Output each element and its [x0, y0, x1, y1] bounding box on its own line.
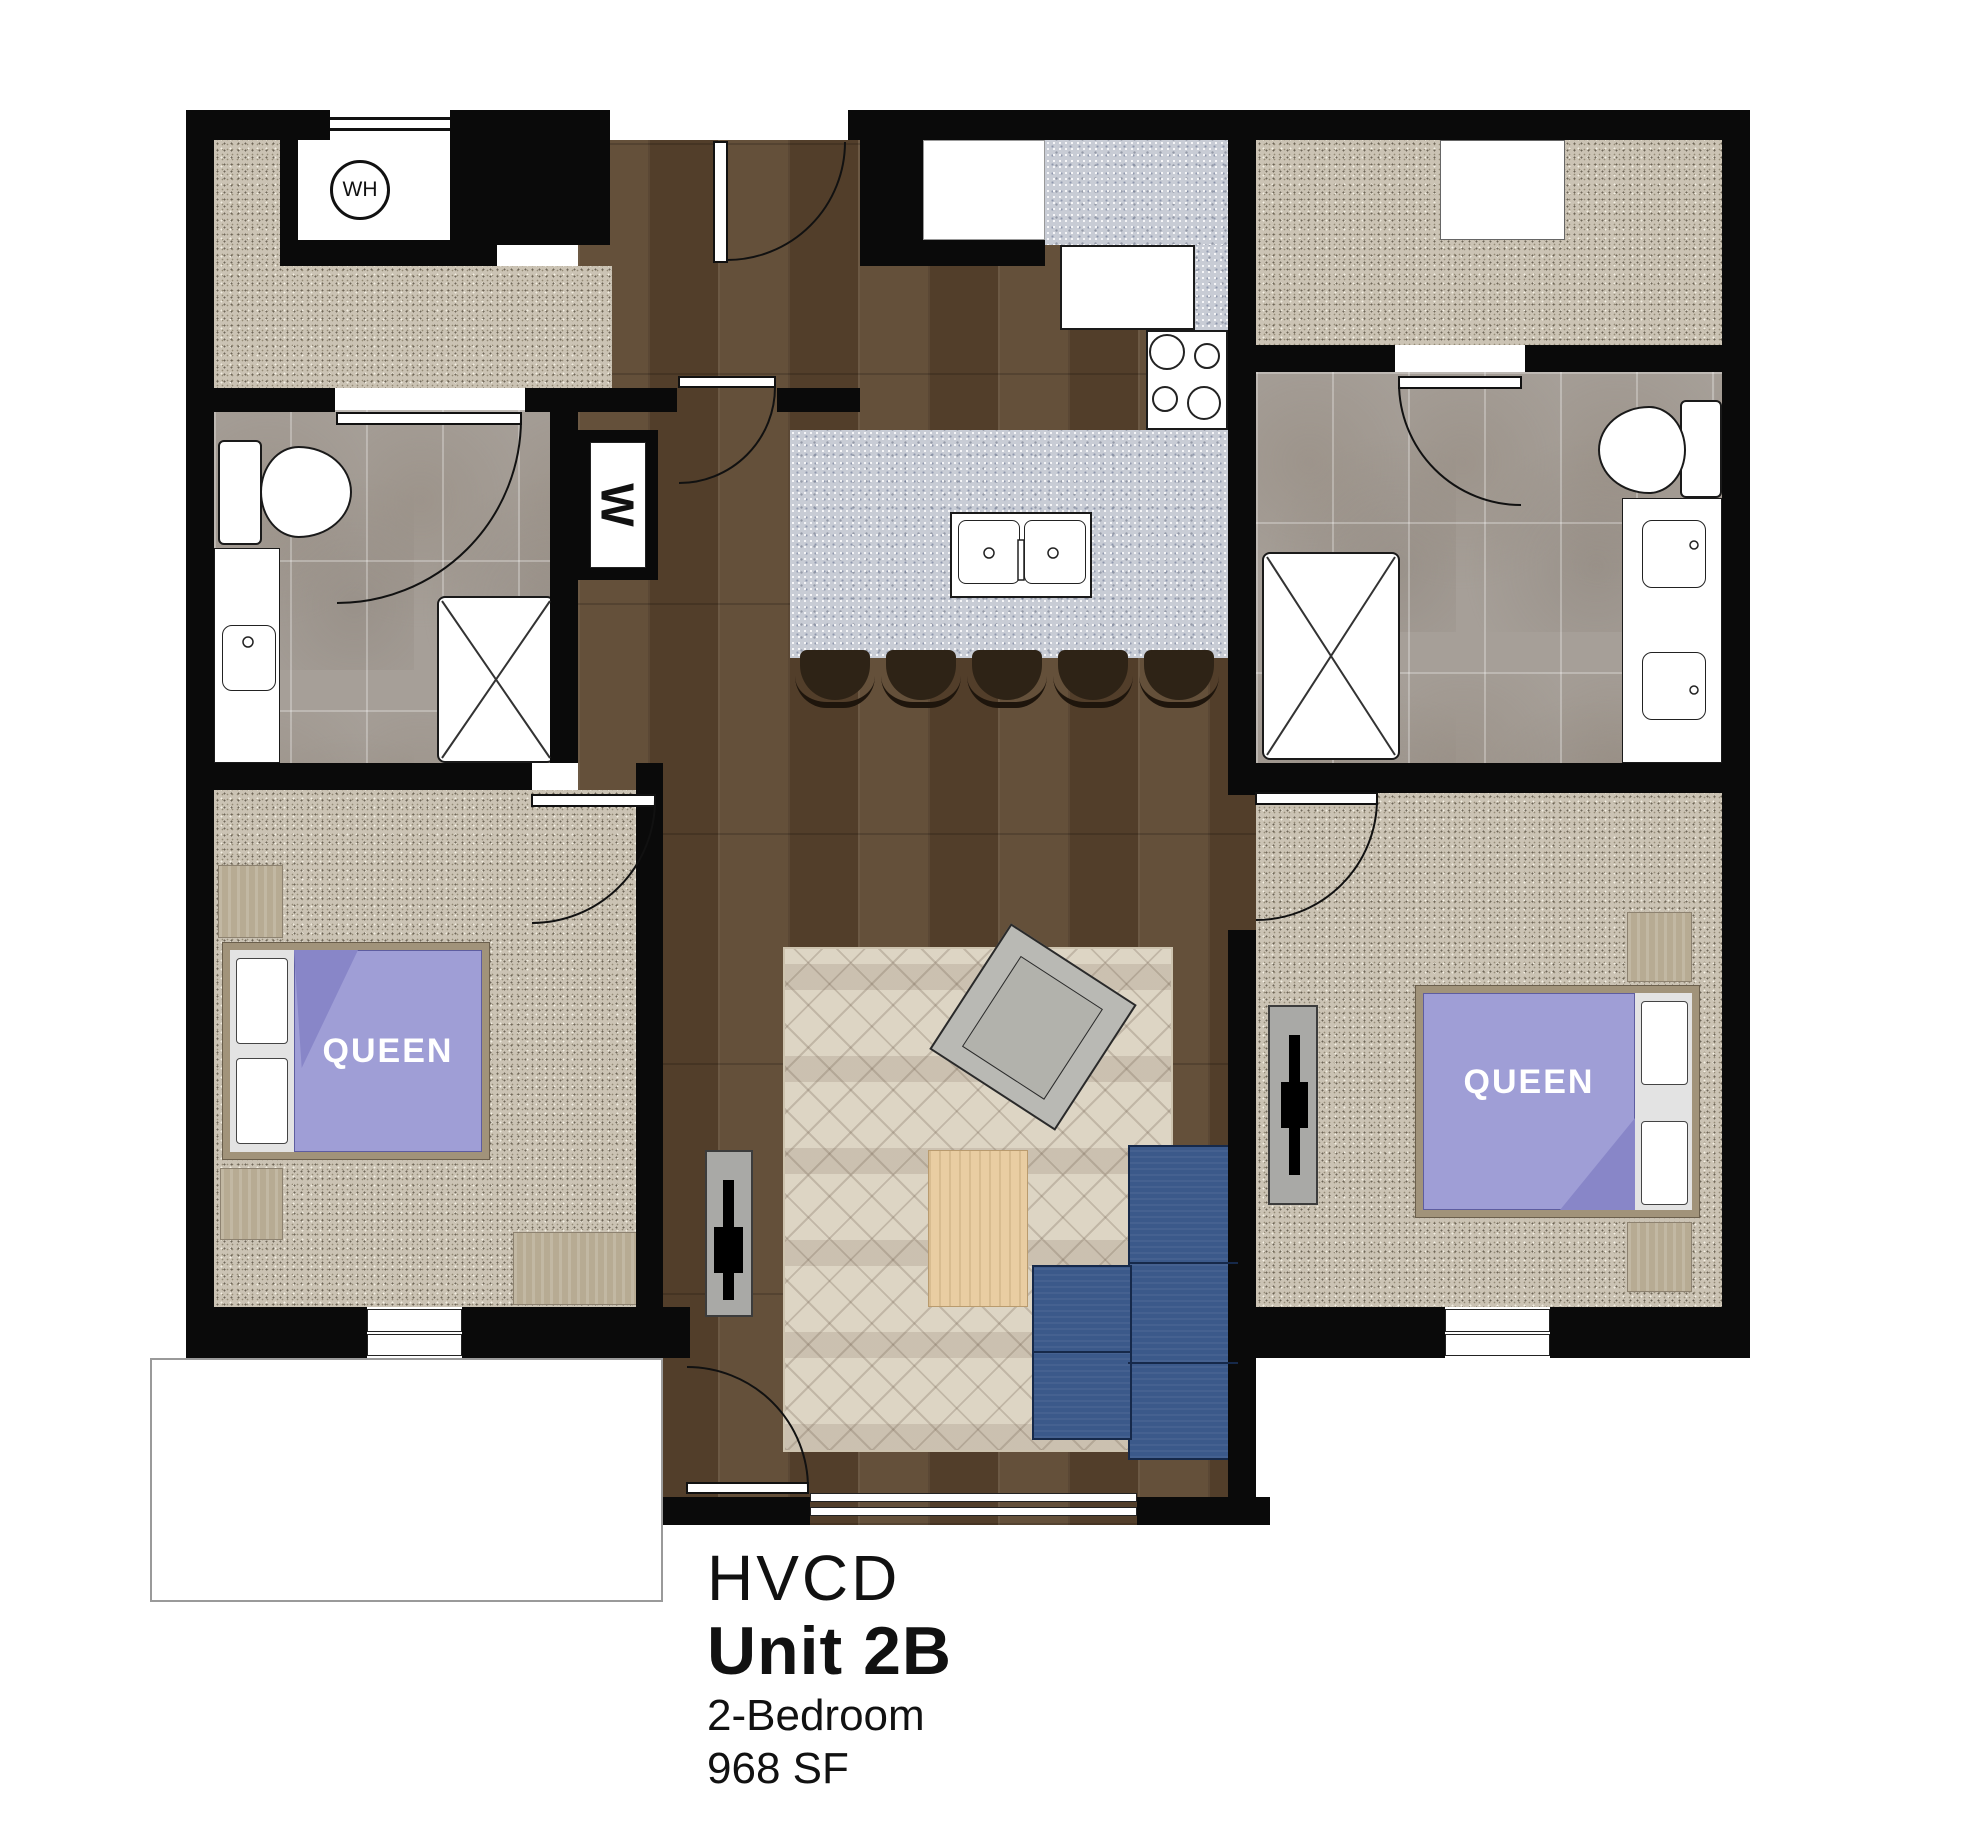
- water-heater-label: WH: [343, 178, 378, 202]
- kitchen-sink-basin-right: [1024, 520, 1086, 584]
- nightstand: [1627, 1222, 1692, 1292]
- wall-closet-bath2: [1256, 345, 1395, 372]
- closet-shelf: [1440, 140, 1565, 240]
- sofa-section-chaise: [1032, 1265, 1132, 1440]
- unit-name: Unit 2B: [707, 1612, 1307, 1690]
- toilet-tank: [218, 440, 262, 545]
- bed1-pillow: [236, 958, 288, 1044]
- accent-chair-seat: [962, 956, 1103, 1100]
- wall-bedroom1-living: [636, 763, 663, 1307]
- wall: [186, 1307, 367, 1358]
- project-name: HVCD: [707, 1545, 1307, 1612]
- unit-type: 2-Bedroom: [707, 1690, 1307, 1743]
- bed2-pillow: [1641, 1121, 1688, 1205]
- wall: [186, 763, 532, 790]
- living-window-band: [810, 1507, 1137, 1516]
- bedroom2-tv-mount: [1281, 1082, 1308, 1128]
- wall: [280, 140, 298, 243]
- bedroom1-window: [367, 1309, 462, 1332]
- entry-carpet: [214, 266, 612, 388]
- bed1-pillow: [236, 1058, 288, 1144]
- nightstand: [220, 1168, 283, 1240]
- wall-closet-bath2: [1525, 345, 1722, 372]
- living-tv-mount: [714, 1227, 743, 1273]
- wall: [610, 388, 677, 412]
- wall: [450, 140, 610, 245]
- wall: [525, 388, 610, 412]
- wall: [450, 110, 610, 140]
- wh-closet-door: [330, 117, 450, 120]
- bathroom2-sink: [1642, 652, 1706, 720]
- dresser: [513, 1232, 637, 1305]
- bedroom1-window: [367, 1334, 462, 1356]
- bedroom2-window: [1445, 1309, 1550, 1332]
- wall: [860, 140, 923, 240]
- bathroom1-shower: [437, 596, 555, 763]
- bed2-label: QUEEN: [1423, 1063, 1635, 1102]
- entry-closet: [923, 140, 1045, 240]
- sofa-section-main: [1128, 1145, 1238, 1460]
- floor-plan: QUEEN QUEEN: [0, 0, 1986, 1836]
- wall: [550, 410, 578, 763]
- nightstand: [218, 865, 283, 938]
- wall-living-bedroom2: [1228, 930, 1256, 1525]
- wall-left-exterior: [186, 110, 214, 1358]
- kitchen-sink-basin-left: [958, 520, 1020, 584]
- bathroom2-shower: [1262, 552, 1400, 760]
- washer-symbol: W: [590, 442, 646, 568]
- bed1-label: QUEEN: [294, 1032, 482, 1071]
- bathroom2-sink: [1642, 520, 1706, 588]
- stove-cooktop: [1146, 330, 1228, 430]
- bed2-pillow: [1641, 1001, 1688, 1085]
- wall: [663, 1497, 810, 1525]
- wall-bath2-bedroom2: [1256, 763, 1722, 793]
- coffee-table: [928, 1150, 1028, 1307]
- unit-area: 968 SF: [707, 1743, 1307, 1796]
- wall: [1256, 110, 1750, 140]
- nightstand: [1627, 912, 1692, 982]
- title-block: HVCD Unit 2B 2-Bedroom 968 SF: [707, 1545, 1307, 1796]
- wall: [186, 388, 335, 412]
- wall: [777, 388, 860, 412]
- wall-right-exterior: [1722, 110, 1750, 1358]
- washer-label: W: [591, 483, 645, 526]
- wall: [860, 240, 1045, 266]
- entry-carpet-strip: [214, 140, 280, 266]
- living-window-band: [810, 1493, 1137, 1502]
- water-heater-symbol: WH: [330, 160, 390, 220]
- wall: [462, 1307, 690, 1358]
- refrigerator: [1060, 245, 1195, 330]
- kitchen-counter-top: [1045, 140, 1228, 245]
- bathroom1-sink: [222, 625, 276, 691]
- toilet-tank: [1680, 400, 1722, 498]
- wh-closet-door: [330, 128, 450, 131]
- wall-kitchen-right: [1228, 140, 1256, 795]
- bedroom2-window: [1445, 1334, 1550, 1356]
- wall: [1228, 1307, 1445, 1358]
- wall: [1550, 1307, 1750, 1358]
- wall: [848, 110, 1258, 140]
- balcony: [150, 1358, 663, 1602]
